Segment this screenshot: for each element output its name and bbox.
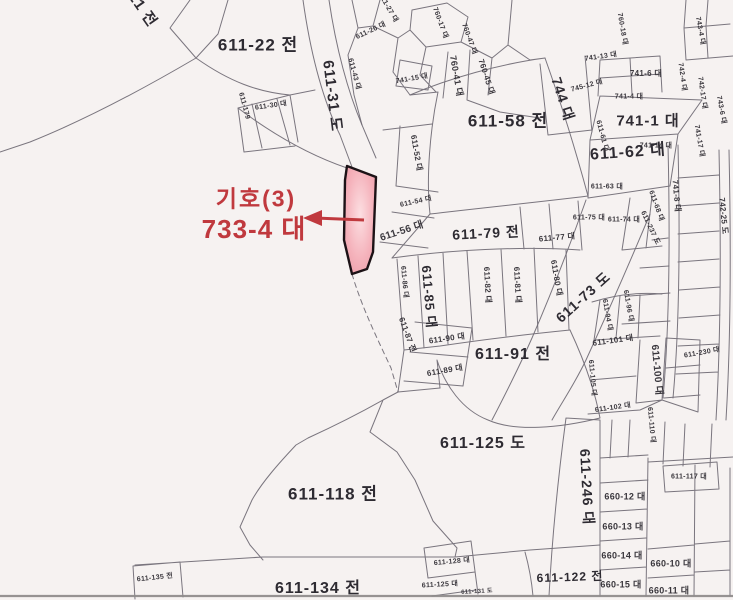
parcel-label: 611-117 대 <box>671 474 707 481</box>
parcel-label: 741-1 대 <box>616 114 679 129</box>
parcel-label: 611-94 대 <box>601 299 613 332</box>
parcel-label: 611-82 대 <box>482 267 492 304</box>
parcel-label: 611-27 대 <box>377 0 399 24</box>
parcel-label: 611-90 대 <box>428 333 465 346</box>
parcel-label: 611-87 전 <box>397 317 417 354</box>
parcel-label: 660-11 대 <box>649 587 690 596</box>
parcel-label: 741-13 대 <box>584 51 617 62</box>
parcel-label: 611-131 도 <box>461 588 493 596</box>
parcel-label: 741-8 대 <box>671 180 682 213</box>
parcel-label: 611-81 대 <box>512 267 522 304</box>
parcel-label: 611-230 대 <box>683 346 720 359</box>
parcel-label: 611-91 전 <box>475 347 551 363</box>
parcel-label: 741-6 대 <box>630 70 662 78</box>
parcel-label: 611-75 대 <box>573 215 605 222</box>
parcel-label: 611-118 전 <box>288 486 378 503</box>
parcel-label: 611-56 대 <box>379 220 425 243</box>
parcel-label: 760-45 대 <box>476 58 495 96</box>
parcel-label: 742-25 도 <box>717 197 728 234</box>
parcel-label: 611-68 대 <box>647 190 665 223</box>
parcel-label: 743-6 대 <box>715 95 727 124</box>
parcel-label: 660-12 대 <box>604 493 645 502</box>
annotation-symbol: 기호(3) <box>216 188 296 211</box>
parcel-label: 660-15 대 <box>600 581 641 590</box>
parcel-label: 611-85 대 <box>420 265 438 329</box>
parcel-label: 760-41 대 <box>448 55 464 97</box>
parcel-label: 611-246 대 <box>578 448 596 525</box>
parcel-label: 611-100 대 <box>649 344 663 396</box>
parcel-label: 611-89 대 <box>426 364 463 378</box>
parcel-label: 611-21 전 <box>106 0 160 30</box>
parcel-label: 611-86 대 <box>399 266 409 299</box>
parcel-label: 611-79 전 <box>452 224 520 242</box>
parcel-label: 611-54 대 <box>400 195 433 209</box>
parcel-label: 611-125 도 <box>440 436 526 452</box>
parcel-label: 611-30 대 <box>255 100 288 111</box>
parcel-label: 611-125 대 <box>422 581 459 590</box>
parcel-label: 660-14 대 <box>601 552 642 561</box>
parcel-label: 660-10 대 <box>650 560 691 569</box>
parcel-label: 611-74 대 <box>608 217 640 224</box>
parcel-label: 611-63 대 <box>591 184 623 191</box>
parcel-label: 611-110 대 <box>646 407 656 443</box>
parcel-label: 611-43 대 <box>346 58 361 91</box>
parcel-label: 611-31 도 <box>320 59 344 132</box>
parcel-label: 744 대 <box>549 75 576 122</box>
parcel-label: 741-15 대 <box>395 73 428 86</box>
parcel-label: 760-17 대 <box>431 6 449 39</box>
parcel-label: 741-4 대 <box>615 94 643 101</box>
parcel-label: 611-102 대 <box>594 402 631 414</box>
cadastral-map: 611-21 전611-22 전611-31 도611-179611-30 대6… <box>0 0 733 600</box>
parcel-label: 742-4 대 <box>677 62 688 91</box>
parcel-label: 611-122 전 <box>536 570 603 584</box>
parcel-label: 611-58 전 <box>468 113 548 130</box>
parcel-label: 760-18 대 <box>616 12 629 45</box>
parcel-label: 611-52 대 <box>409 134 423 171</box>
parcel-label: 611-22 전 <box>218 37 298 54</box>
parcel-label: 743-4 대 <box>694 16 706 45</box>
parcel-label: 611-134 전 <box>275 581 361 597</box>
annotation-parcel-id: 733-4 대 <box>202 216 307 242</box>
parcel-label: 611-179 <box>237 92 251 120</box>
parcel-label: 611-128 대 <box>434 557 471 567</box>
parcel-label: 760-47 대 <box>460 22 478 55</box>
parcel-label: 660-13 대 <box>602 523 643 532</box>
parcel-label: 611-135 전 <box>137 573 174 584</box>
parcel-label: 745-12 대 <box>570 78 603 93</box>
parcel-label: 611-105 대 <box>587 360 597 397</box>
parcel-label: 741-17 대 <box>693 124 706 157</box>
parcel-label: 611-96 대 <box>622 290 634 323</box>
parcel-label: 742-17 대 <box>696 76 707 109</box>
parcel-label: 611-101 대 <box>592 334 634 348</box>
parcel-label: 611-80 대 <box>549 259 563 296</box>
parcel-label: 611-77 대 <box>538 232 575 243</box>
parcel-labels: 611-21 전611-22 전611-31 도611-179611-30 대6… <box>0 0 733 600</box>
parcel-label: 611-26 대 <box>355 21 387 41</box>
